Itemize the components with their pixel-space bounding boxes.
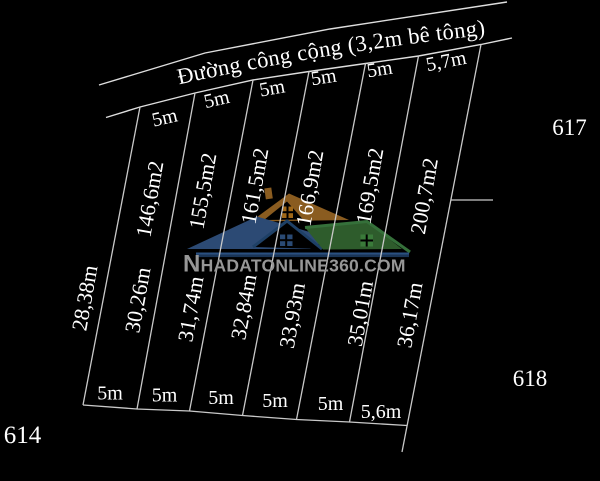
svg-text:5m: 5m — [97, 383, 123, 405]
svg-text:5m: 5m — [262, 390, 288, 412]
svg-text:5m: 5m — [365, 57, 394, 83]
svg-text:618: 618 — [513, 366, 548, 391]
svg-text:614: 614 — [4, 422, 42, 449]
svg-text:5m: 5m — [208, 387, 234, 409]
svg-text:NHADATONLINE360.COM: NHADATONLINE360.COM — [183, 251, 406, 278]
svg-text:5m: 5m — [152, 385, 178, 407]
svg-text:5m: 5m — [309, 65, 338, 91]
svg-text:5m: 5m — [258, 75, 287, 101]
svg-text:5m: 5m — [318, 393, 344, 415]
svg-text:617: 617 — [552, 115, 587, 140]
svg-text:5,6m: 5,6m — [361, 401, 402, 423]
